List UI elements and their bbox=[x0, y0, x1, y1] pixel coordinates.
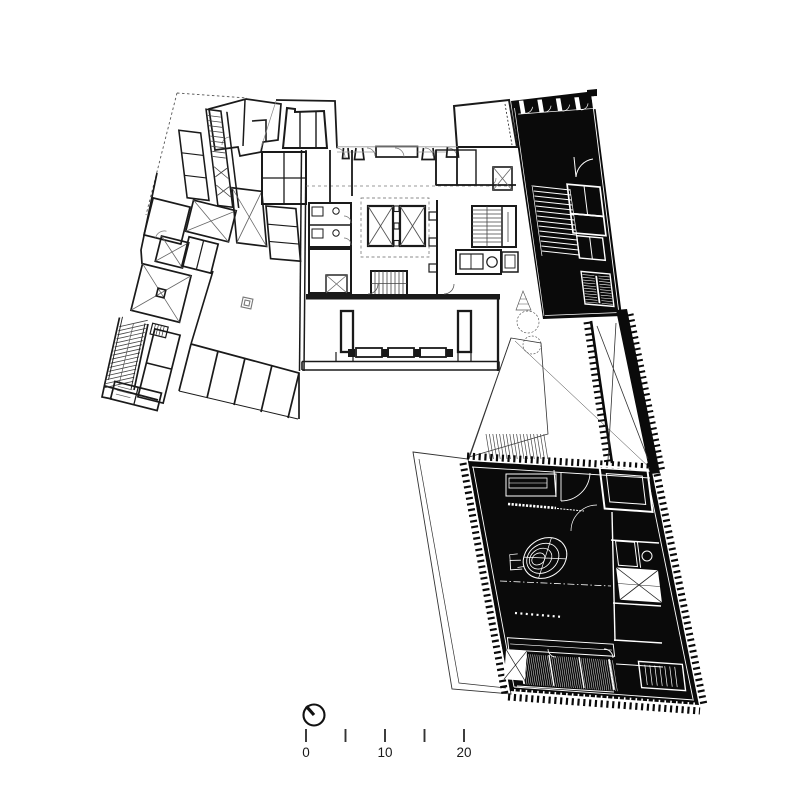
svg-text:10: 10 bbox=[377, 745, 392, 760]
svg-text:0: 0 bbox=[302, 745, 310, 760]
svg-text:20: 20 bbox=[456, 745, 471, 760]
